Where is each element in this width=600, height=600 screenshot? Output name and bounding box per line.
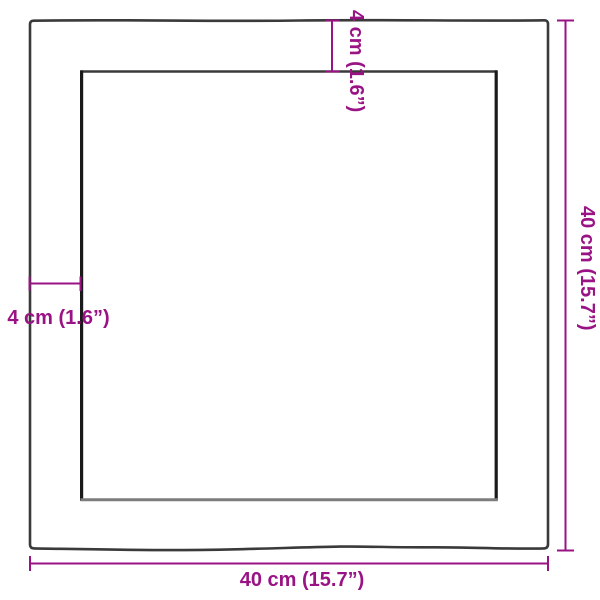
thickness-label-top: 4 cm (1.6”) [346,10,366,112]
product-dimension-diagram: 4 cm (1.6”) 4 cm (1.6”) 40 cm (15.7”) 40… [0,0,600,600]
thickness-label-left: 4 cm (1.6”) [6,306,111,330]
board-diagram-canvas [0,0,600,600]
length-label-right: 40 cm (15.7”) [577,206,597,331]
dimension-annotations [30,21,575,572]
board-outer-edge [30,20,548,550]
width-label-bottom: 40 cm (15.7”) [172,568,432,592]
